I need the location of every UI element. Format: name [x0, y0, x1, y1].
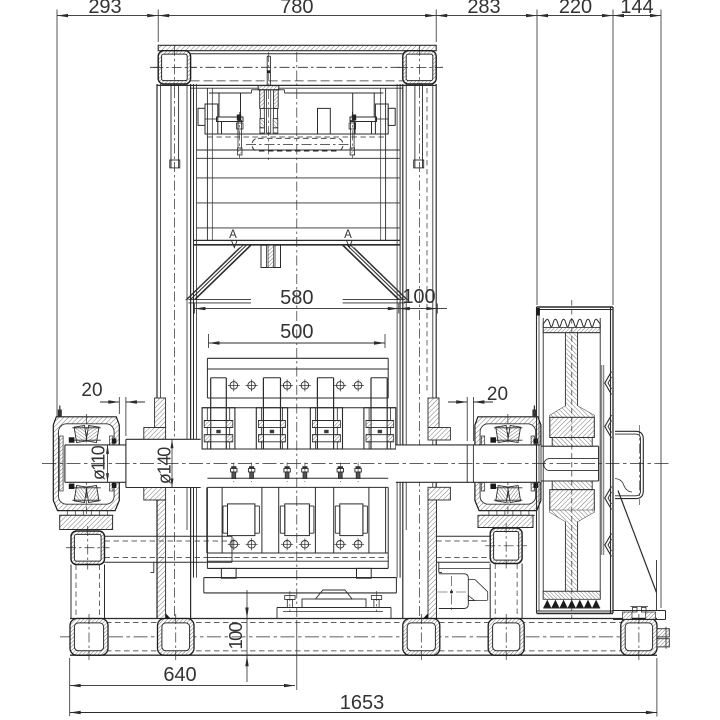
svg-text:ø140: ø140 — [155, 447, 175, 484]
svg-text:293: 293 — [88, 0, 121, 18]
svg-text:ø110: ø110 — [89, 445, 109, 480]
svg-text:580: 580 — [280, 287, 313, 309]
svg-text:100: 100 — [402, 286, 435, 308]
svg-text:220: 220 — [559, 0, 592, 18]
svg-text:100: 100 — [225, 622, 246, 649]
svg-text:780: 780 — [280, 0, 313, 18]
svg-text:A: A — [229, 229, 237, 241]
svg-text:A: A — [344, 229, 352, 241]
svg-text:640: 640 — [163, 664, 196, 686]
svg-text:1653: 1653 — [340, 692, 385, 714]
svg-text:144: 144 — [620, 0, 653, 18]
svg-text:20: 20 — [81, 380, 102, 401]
svg-text:283: 283 — [467, 0, 500, 18]
svg-text:500: 500 — [280, 321, 313, 343]
svg-text:20: 20 — [487, 384, 508, 405]
